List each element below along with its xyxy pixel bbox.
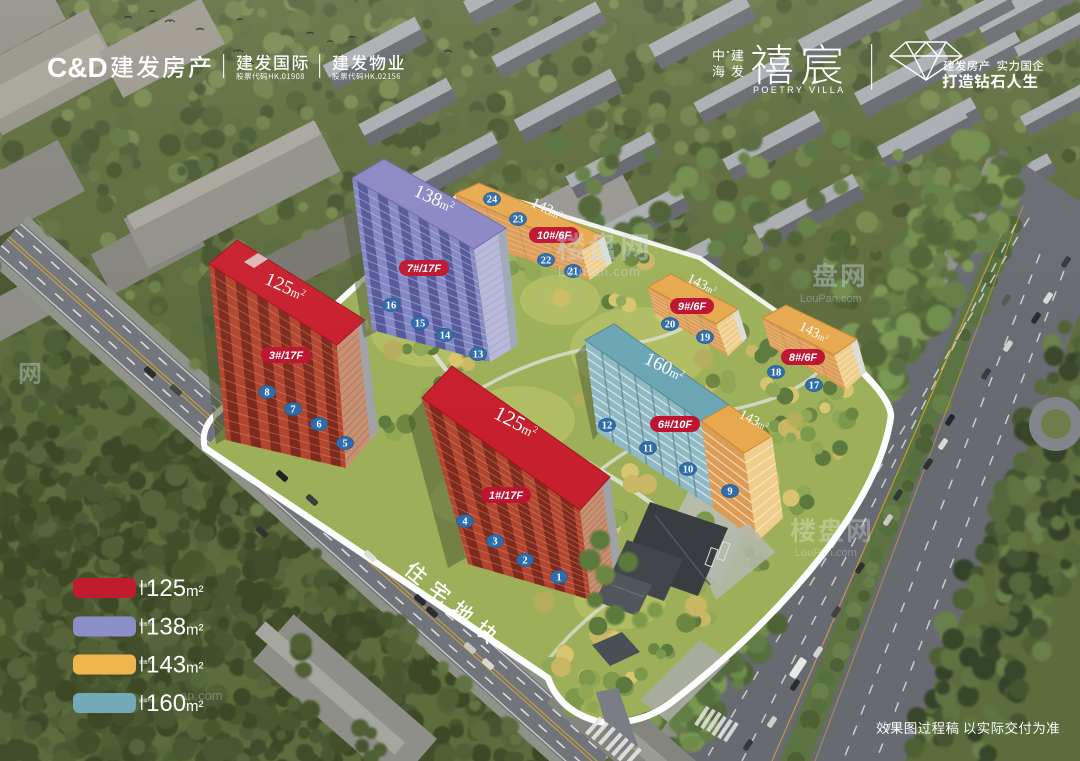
svg-text:4: 4 (462, 516, 468, 527)
svg-text:1#/17F: 1#/17F (489, 490, 524, 502)
svg-text:LouPan.com: LouPan.com (558, 264, 641, 279)
svg-text:2: 2 (522, 555, 527, 566)
svg-text:9: 9 (727, 486, 732, 497)
svg-text:3: 3 (492, 536, 497, 547)
svg-text:LouPan.com: LouPan.com (795, 547, 857, 559)
svg-text:POETRY VILLA: POETRY VILLA (753, 85, 846, 95)
svg-text:C&D: C&D (47, 52, 108, 83)
svg-text:LouPan.com: LouPan.com (800, 293, 862, 305)
svg-text:12: 12 (602, 420, 613, 431)
svg-text:1: 1 (556, 572, 561, 583)
svg-text:11: 11 (643, 443, 653, 454)
svg-text:6#/10F: 6#/10F (658, 419, 693, 431)
svg-text:6: 6 (316, 419, 321, 430)
svg-text:5: 5 (342, 438, 347, 449)
svg-text:10: 10 (683, 464, 694, 475)
